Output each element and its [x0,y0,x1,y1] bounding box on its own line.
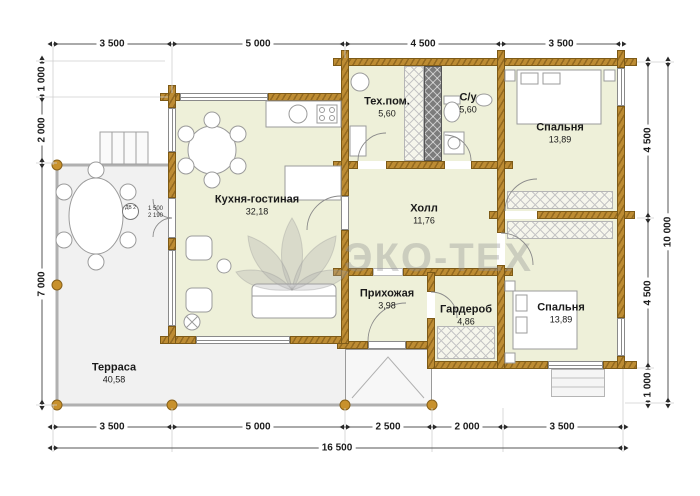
wall [168,152,176,198]
room-label-bedroom-top: Спальня 13,89 [536,122,584,145]
dim-right-1: 4 500 [643,124,654,155]
dim-top-4: 3 500 [545,39,576,50]
room-label-wardrobe: Гардероб 4,86 [440,304,492,327]
dim-left-2: 2 000 [37,114,48,145]
wall [497,265,505,369]
room-label-bedroom-bottom: Спальня 13,89 [537,302,585,325]
wall [168,326,176,344]
room-label-entry: Прихожая 3,98 [360,288,414,311]
wall [427,318,435,369]
wall-opening [373,268,403,276]
dim-bottom-1: 3 500 [96,422,127,433]
room-label-bathroom: С/у 5,60 [459,92,477,115]
window [196,336,290,344]
dim-left-1: 1 000 [37,63,48,94]
door-annotation: ДВ 2 1 500 2 190 [148,206,163,220]
door-leaf [341,196,349,230]
porch [345,349,432,405]
window [168,250,176,326]
terrace-stairs [100,132,148,164]
wall [268,93,349,101]
window [548,361,603,369]
dim-top-1: 3 500 [96,39,127,50]
wall [427,361,548,369]
room-fill-bedroom-bottom [505,219,617,361]
window [168,108,176,152]
window [180,93,268,101]
dim-right-total: 10 000 [663,214,674,251]
wall [471,161,513,169]
chimney-shaft [424,66,442,161]
wall [617,50,625,68]
wall [333,58,637,66]
wall [341,230,349,344]
dim-right-3: 1 000 [643,369,654,400]
wall [427,272,435,292]
dim-bottom-4: 2 000 [451,422,482,433]
dim-top-2: 5 000 [242,39,273,50]
room-fill-kitchen-living [176,101,341,336]
dim-bottom-3: 2 500 [372,422,403,433]
room-label-kitchen-living: Кухня-гостиная 32,18 [215,194,299,217]
room-label-terrace: Терраса 40,58 [92,362,136,385]
wall [333,268,373,276]
dim-right-2: 4 500 [643,277,654,308]
bedroom-top-closet-hatch [507,191,613,209]
wall [617,356,625,369]
window [617,68,625,106]
rear-step [551,369,605,397]
wall [160,336,196,344]
wall [168,85,176,108]
wall [497,50,505,233]
dim-left-3: 7 000 [37,268,48,299]
room-label-hall: Холл 11,76 [410,203,438,226]
wall [386,161,445,169]
door-leaf [368,341,406,349]
wall [617,106,625,318]
floor-plan: 3 500 5 000 4 500 3 500 3 500 5 000 2 50… [0,0,700,496]
door-tag-circle: ДВ 2 [122,203,139,220]
dim-bottom-total: 16 500 [319,443,356,454]
wardrobe-shelves-hatch [437,326,495,359]
door-leaf [168,198,176,238]
door-width: 1 500 [148,206,163,213]
wall [341,50,349,196]
bedroom-bottom-closet-hatch [507,221,613,239]
wall [168,238,176,250]
dim-bottom-2: 5 000 [242,422,273,433]
room-label-tech: Тех.пом. 5,60 [364,96,410,119]
dim-bottom-5: 3 500 [546,422,577,433]
window [617,318,625,356]
door-height: 2 190 [148,213,163,220]
dim-top-3: 4 500 [407,39,438,50]
